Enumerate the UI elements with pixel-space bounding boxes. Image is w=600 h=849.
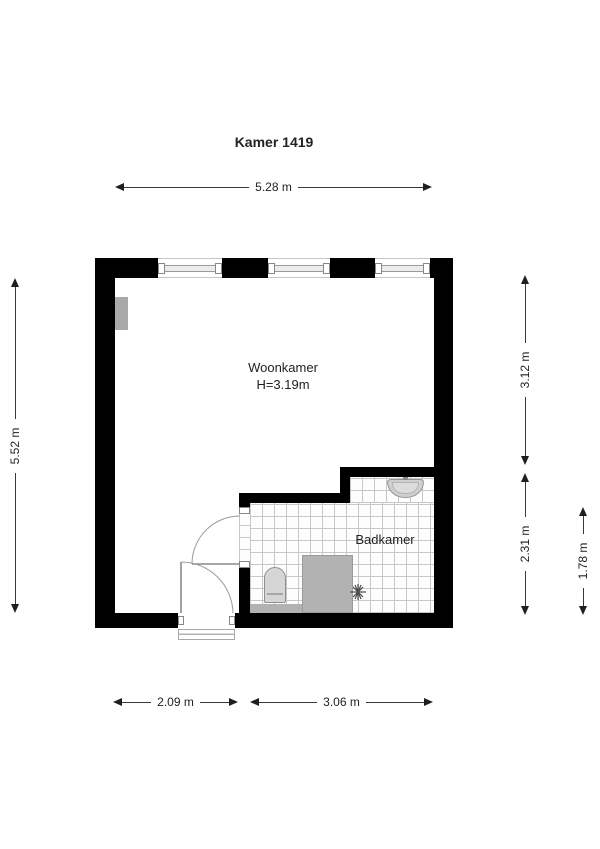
bathroom-door-swing-arc: [192, 516, 240, 564]
room-ceiling-height: H=3.19m: [256, 377, 309, 392]
doors-and-symbols-overlay: [0, 0, 600, 849]
entrance-door-swing-arc: [181, 562, 233, 613]
floor-plan: Kamer 1419 5.28 m 5.52 m 3.12 m 2.31 m 1…: [0, 0, 600, 849]
room-label-living: Woonkamer: [248, 360, 318, 375]
room-label-bathroom: Badkamer: [355, 532, 414, 547]
shower-drain-icon: [350, 584, 366, 600]
